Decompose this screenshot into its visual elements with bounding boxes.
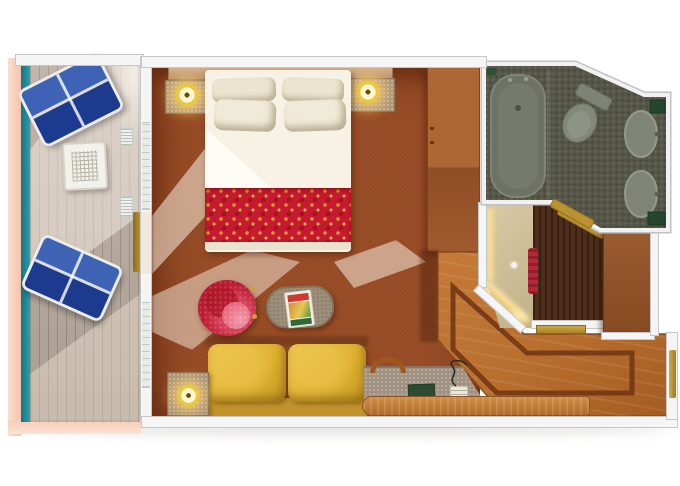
balcony-mesh-table <box>62 141 108 191</box>
vanity-counter-green <box>650 100 665 113</box>
closet-knob <box>511 262 517 268</box>
bed <box>205 70 351 252</box>
threshold-gold <box>536 325 586 334</box>
wardrobe-entry <box>603 228 653 334</box>
sofa <box>206 344 368 418</box>
toilet-tank <box>575 83 613 111</box>
entry-door <box>669 350 676 398</box>
hanging-garment <box>528 248 538 294</box>
floorplan-canvas <box>0 0 680 486</box>
balcony-window-lower <box>142 302 150 388</box>
sliding-glass-door <box>133 212 140 272</box>
balcony-top-wall <box>15 54 144 66</box>
coffee-table <box>265 285 334 329</box>
closet-glow-bar <box>487 208 494 282</box>
magazine-cover-photo <box>288 301 311 319</box>
sofa-cushion <box>208 344 286 402</box>
balcony-door-opening <box>141 212 151 274</box>
bathtub <box>491 75 545 197</box>
red-tub-chair <box>198 280 256 336</box>
balcony-trim-bottom <box>8 420 141 434</box>
toilet <box>554 83 612 149</box>
mesh-table-grid <box>71 150 99 181</box>
carpet-shadow <box>420 250 440 342</box>
wardrobe-handle <box>430 141 434 144</box>
table-lamp-sofa <box>177 384 200 407</box>
chair-gold-foot <box>250 286 255 291</box>
cabin-top-wall <box>141 56 487 68</box>
entry-wall-right-recess <box>650 228 659 336</box>
basin-faucet <box>655 132 660 137</box>
chair-gold-foot <box>252 314 257 319</box>
deck-vent <box>120 196 133 217</box>
pillow <box>283 99 346 132</box>
toilet-bowl <box>556 98 603 148</box>
table-lamp-left <box>175 83 199 107</box>
magazine <box>284 290 315 329</box>
balcony-trim-left <box>8 58 21 436</box>
bathtub-faucet <box>508 78 512 82</box>
pillow <box>213 99 276 132</box>
washbasin <box>625 111 657 157</box>
bed-runner <box>205 188 351 242</box>
wardrobe <box>427 66 480 252</box>
bathtub-basin <box>498 83 538 189</box>
entry-wall-below-wardrobe <box>601 332 655 340</box>
cabin-bottom-wall <box>141 416 678 428</box>
wardrobe-handle <box>430 127 434 130</box>
magazine-footer <box>290 318 312 327</box>
bed-foot-edge <box>205 242 351 250</box>
closet-dark-interior <box>533 204 603 326</box>
bathtub-drain <box>515 105 521 111</box>
bathtub-faucet <box>524 77 528 81</box>
sofa-cushion <box>288 344 366 402</box>
table-lamp-right <box>356 80 380 104</box>
balcony-window-upper <box>142 122 150 210</box>
bath-shelf-green <box>487 68 496 75</box>
closet-wall-vertical <box>478 202 487 288</box>
vanity-counter-front <box>362 396 590 416</box>
deck-vent <box>120 128 133 146</box>
toilet-seat <box>563 107 596 142</box>
chair-dot-pattern <box>198 280 256 336</box>
